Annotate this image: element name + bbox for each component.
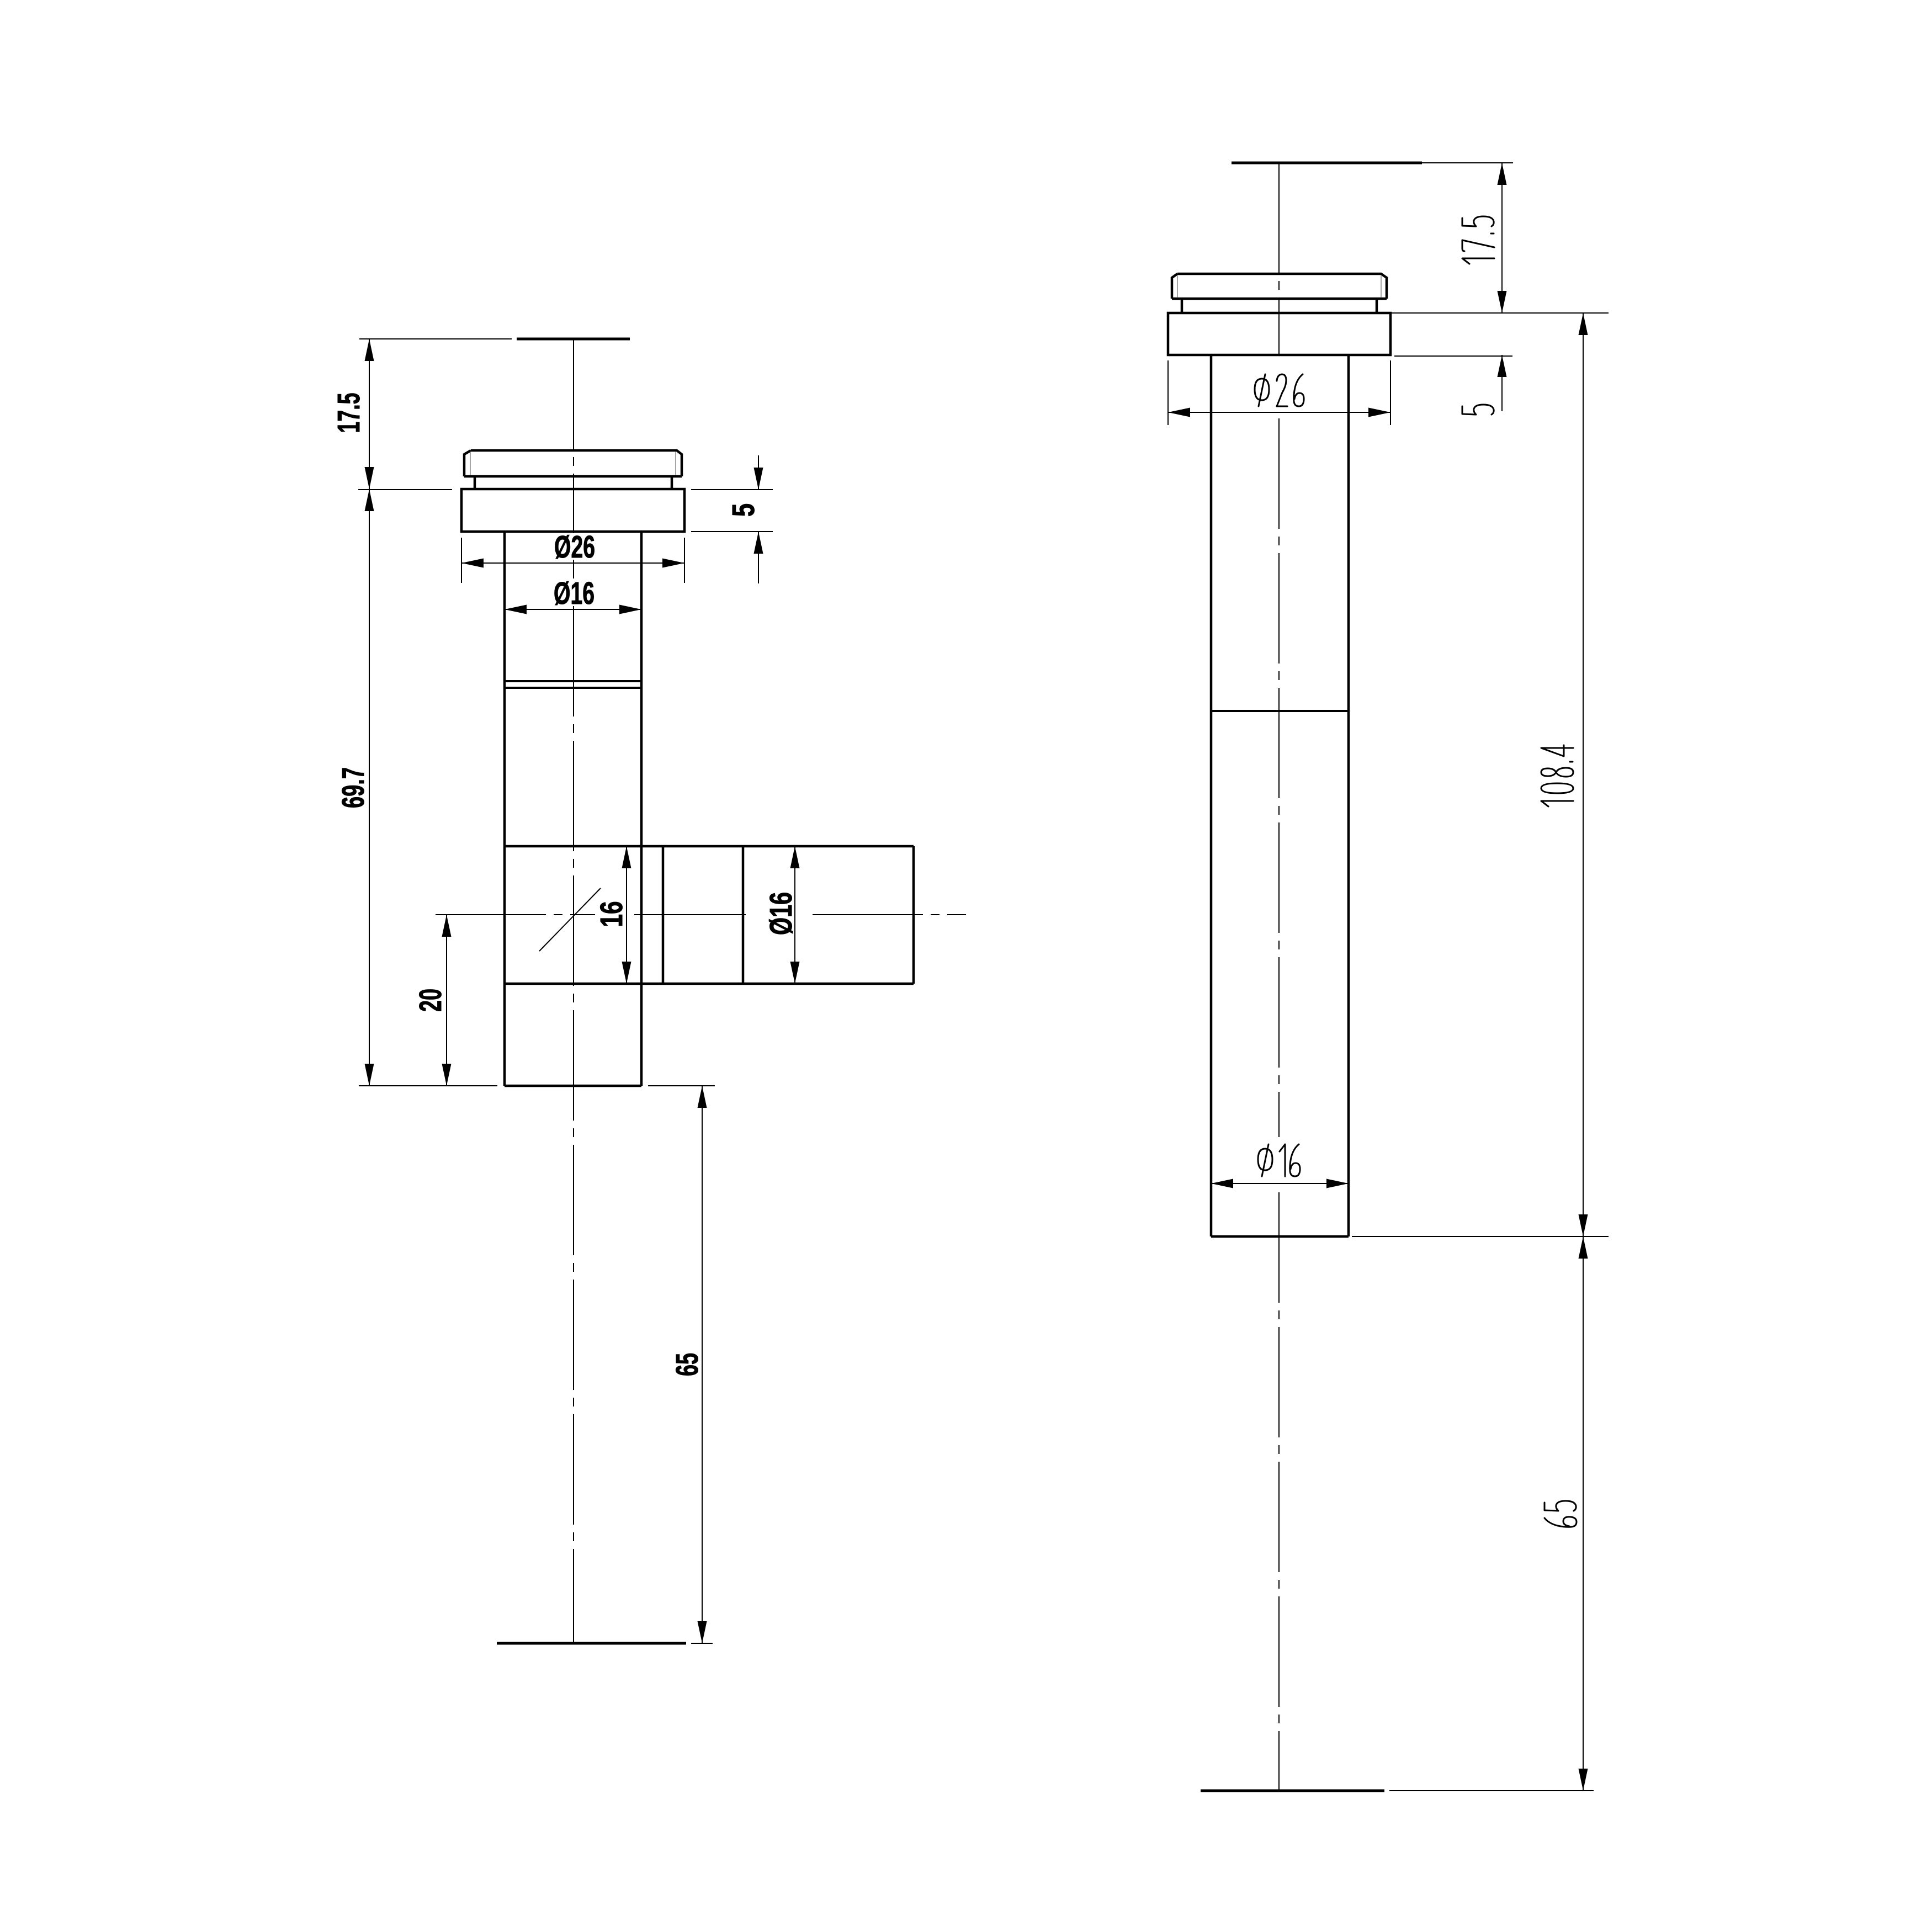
svg-text:17.5: 17.5 [331, 393, 367, 433]
svg-text:Ø16: Ø16 [763, 892, 799, 935]
svg-text:20: 20 [413, 989, 448, 1012]
svg-text:16: 16 [594, 901, 629, 927]
svg-text:65: 65 [670, 1353, 705, 1376]
svg-text:Ø26: Ø26 [554, 529, 595, 565]
svg-text:69.7: 69.7 [336, 767, 371, 808]
svg-text:5: 5 [726, 503, 761, 517]
svg-text:Ø16: Ø16 [554, 576, 595, 611]
